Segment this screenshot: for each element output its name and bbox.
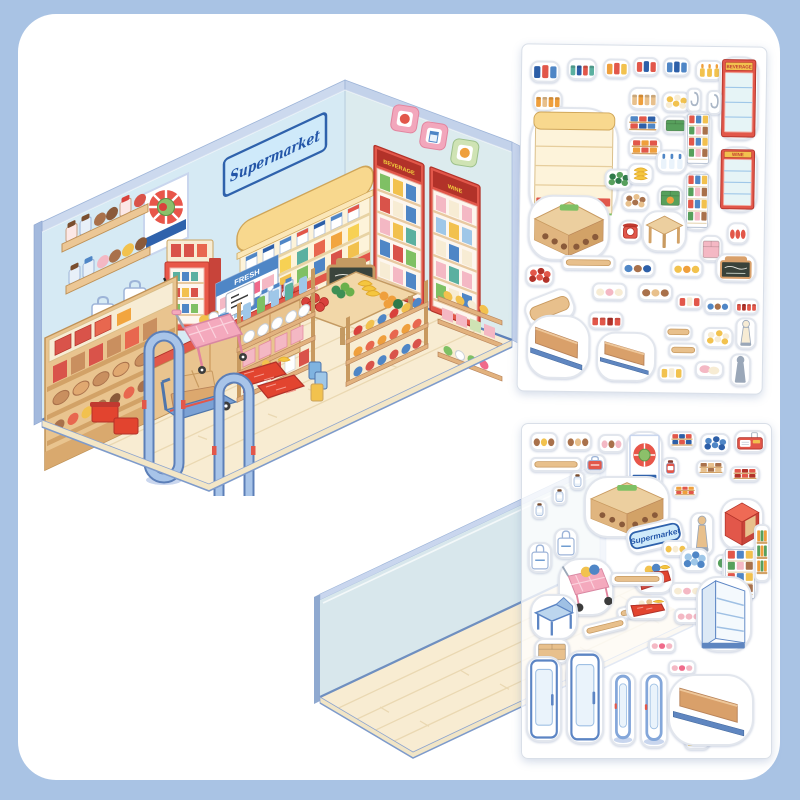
sticker-divider-3 xyxy=(668,674,754,746)
sticker-security-gate-1 xyxy=(610,672,636,746)
sticker-sushi xyxy=(592,282,627,300)
sticker-chalkboard xyxy=(715,253,756,283)
sticker-donuts-blue xyxy=(620,259,655,277)
sticker-scale xyxy=(619,220,642,243)
sticker-sausages xyxy=(734,298,759,314)
sticker-blue-bags xyxy=(680,548,709,572)
sticker-goods-bag-2 xyxy=(554,528,578,559)
sticker-security-gate-2 xyxy=(640,672,668,748)
sticker-open-cooler xyxy=(696,576,752,652)
sticker-books-red xyxy=(730,466,760,482)
sticker-plank-4 xyxy=(668,342,698,357)
sticker-cups-yellow xyxy=(670,259,703,277)
sticker-box-orange-dot xyxy=(657,185,683,209)
sticker-strip-small xyxy=(672,484,698,498)
sticker-sheet-top: BEVERAGEFREEZERWINE xyxy=(517,43,768,394)
sticker-fridge-wine: WINE xyxy=(717,146,758,213)
svg-text:WINE: WINE xyxy=(732,152,744,157)
sticker-packs-blue xyxy=(663,57,690,76)
sticker-plank-3 xyxy=(664,324,692,339)
sticker-donuts xyxy=(638,283,673,301)
sticker-cans-teal xyxy=(567,58,597,80)
sticker-shelf-strip-tall xyxy=(754,524,770,582)
sticker-pack-yellow xyxy=(658,364,685,381)
sticker-red-bag xyxy=(584,454,606,473)
sticker-plank-6 xyxy=(610,572,664,586)
sticker-choco-shelf xyxy=(696,460,726,476)
sticker-filled-shelf-tall xyxy=(683,171,712,231)
sticker-divider-1 xyxy=(526,314,591,379)
sticker-fridge-door-2 xyxy=(566,650,604,744)
sticker-statue xyxy=(735,317,756,349)
svg-text:BEVERAGE: BEVERAGE xyxy=(726,64,751,69)
wall-outer-edge xyxy=(34,221,42,425)
sticker-jar-1 xyxy=(570,471,585,490)
sticker-sheet-bottom: Supermarket xyxy=(521,423,772,759)
sticker-choco-row xyxy=(704,298,732,314)
sticker-candy-pink xyxy=(695,361,724,378)
sticker-step-stool xyxy=(530,594,578,640)
sticker-berries xyxy=(525,264,554,286)
sticker-buns xyxy=(621,191,649,211)
sticker-register xyxy=(734,430,766,453)
sticker-fridge-beverage: BEVERAGE xyxy=(718,56,759,141)
sticker-fridge-door-1 xyxy=(526,656,562,742)
sticker-goods-bag-1 xyxy=(528,542,552,573)
sticker-jar-3 xyxy=(532,500,547,519)
sticker-burgers-1 xyxy=(530,432,558,451)
sticker-packs-orange xyxy=(603,58,630,78)
sticker-red-tub xyxy=(626,596,668,620)
sticker-divider-2 xyxy=(596,331,657,382)
sticker-hook-1 xyxy=(686,88,701,113)
sticker-burgers-2 xyxy=(564,432,592,451)
product-image: Supermarket xyxy=(0,0,800,800)
sticker-cans-red xyxy=(588,311,623,329)
supermarket-room-illustration: Supermarket xyxy=(28,64,524,496)
sticker-milk-bottles xyxy=(656,149,687,173)
sticker-table xyxy=(642,210,688,253)
sticker-candies-pink-1 xyxy=(648,638,676,653)
sticker-plank-8 xyxy=(581,615,629,640)
sticker-filled-shelf-small xyxy=(684,111,713,167)
sticker-bananas xyxy=(627,163,653,185)
sticker-macarons xyxy=(702,327,733,348)
sticker-pack-red-white xyxy=(676,293,703,309)
sticker-packs-navy-red xyxy=(530,60,560,82)
empty-room-wall-edge xyxy=(314,594,320,704)
sticker-candies-pink-2 xyxy=(668,660,696,675)
sticker-bread-counter xyxy=(527,194,610,261)
sticker-soda-red xyxy=(662,457,679,477)
sticker-plank-1 xyxy=(561,255,615,271)
sticker-jar-2 xyxy=(552,486,567,505)
sticker-vase xyxy=(730,353,751,386)
sticker-shelf-strip-cans xyxy=(625,113,660,134)
sticker-strip-red xyxy=(668,431,696,449)
sticker-plank-5 xyxy=(530,457,582,472)
sticker-cupcakes xyxy=(598,434,625,453)
sticker-hook-2 xyxy=(706,90,721,115)
sticker-red-dot-badge xyxy=(727,222,749,244)
sticker-jars-orange xyxy=(629,87,659,110)
sticker-packs-red xyxy=(633,57,659,76)
sticker-denim-stack xyxy=(700,433,730,454)
